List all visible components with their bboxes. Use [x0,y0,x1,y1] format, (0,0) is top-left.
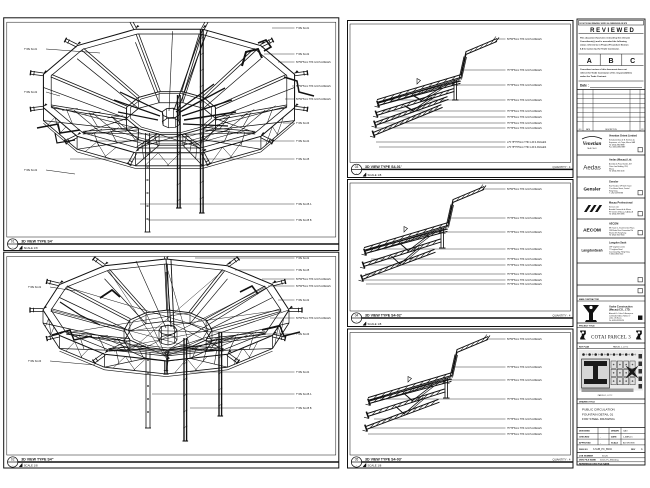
svg-text:Aedas (Macau) Ltd.: Aedas (Macau) Ltd. [609,159,632,162]
svg-text:75*75*6mm THK G.M.S ANGLES: 75*75*6mm THK G.M.S ANGLES [507,418,542,421]
svg-text:-: - [356,171,357,175]
svg-text:50*50*5mm THK G.M.S ANGLES: 50*50*5mm THK G.M.S ANGLES [507,188,542,191]
svg-text:JOB NUMBER: JOB NUMBER [579,456,593,458]
svg-text:TYPE SA-05 B: TYPE SA-05 B [296,219,312,222]
svg-text:31526_PC_8N04.dwg: 31526_PC_8N04.dwg [600,460,619,462]
svg-text:REV: REV [631,449,636,451]
svg-text:TYPE SA-05 A: TYPE SA-05 A [296,393,312,396]
svg-text:TYPE SA-05: TYPE SA-05 [296,269,310,272]
svg-text:TYPE SA-04: TYPE SA-04 [296,140,310,143]
svg-text:DRAWN: DRAWN [611,430,619,433]
svg-text:Tel: (853) 2833 1133: Tel: (853) 2833 1133 [609,171,624,173]
svg-text:75*75*6mm THK G.M.S ANGLES: 75*75*6mm THK G.M.S ANGLES [507,379,542,382]
svg-text:1-MAR-15: 1-MAR-15 [623,436,633,439]
svg-text:Macau Professional: Macau Professional [609,202,633,205]
svg-text:PUBLIC CIRCULATION: PUBLIC CIRCULATION [582,408,615,412]
svg-text:Gensler: Gensler [609,181,618,184]
svg-text:AS SHOWN: AS SHOWN [623,441,635,444]
svg-text:75*75*6mm THK G.M.S ANGLES: 75*75*6mm THK G.M.S ANGLES [507,283,542,286]
svg-text:50*50*5mm THK G.M.S ANGLES: 50*50*5mm THK G.M.S ANGLES [296,61,331,64]
svg-text:Tel: (852) 3922 9000: Tel: (852) 3922 9000 [609,235,625,237]
svg-text:75*75*6mm THK G.M.S ANGLES: 75*75*6mm THK G.M.S ANGLES [507,279,542,282]
svg-text:DWG FILE NAME: DWG FILE NAME [579,459,596,462]
svg-text:50*50*5mm THK G.M.S ANGLES: 50*50*5mm THK G.M.S ANGLES [296,85,331,88]
svg-text:COTAI PARCEL 3: COTAI PARCEL 3 [591,336,631,341]
svg-text:Venetian Orient Limited: Venetian Orient Limited [609,135,637,138]
svg-text:APPROVED: APPROVED [579,441,591,444]
svg-text:75*75*6mm THK G.M.S ANGLES: 75*75*6mm THK G.M.S ANGLES [507,258,542,261]
svg-text:75*75*6mm THK G.M.S ANGLES: 75*75*6mm THK G.M.S ANGLES [507,273,542,276]
svg-text:Langdon Seah: Langdon Seah [609,242,627,245]
svg-text:SCALE 1/8: SCALE 1/8 [368,322,382,326]
svg-text:TYPE SA-03: TYPE SA-03 [296,333,310,336]
svg-text:TYPE SA-05 A: TYPE SA-05 A [296,203,312,206]
svg-text:TYPE SA-03: TYPE SA-03 [28,360,42,363]
svg-text:50*50*5mm THK G.M.S ANGLES: 50*50*5mm THK G.M.S ANGLES [296,278,331,281]
svg-text:50*50*5mm THK G.M.S ANGLES: 50*50*5mm THK G.M.S ANGLES [296,317,331,320]
svg-text:-: - [356,320,357,324]
svg-text:-: - [12,464,13,468]
svg-text:DWG NO: DWG NO [579,449,588,451]
svg-text:75*75*6mm THK G.M.S ANGLES: 75*75*6mm THK G.M.S ANGLES [507,248,542,251]
svg-text:75*75*6mm THK G.M.S ANGLES: 75*75*6mm THK G.M.S ANGLES [507,433,542,436]
svg-text:andar J-K, Macau: andar J-K, Macau [609,318,622,320]
svg-text:05: 05 [355,458,359,462]
svg-text:A: A [587,58,592,65]
svg-text:(Macau) CO., LTD.: (Macau) CO., LTD. [609,309,631,312]
svg-text:TYPE SA-02: TYPE SA-02 [296,53,310,56]
svg-text:Fax: (853) 2882 8889: Fax: (853) 2882 8889 [609,147,625,149]
svg-text:75*75*6mm THK G.M.S ANGLES: 75*75*6mm THK G.M.S ANGLES [507,99,542,102]
svg-text:-: - [12,246,13,250]
svg-text:FOR STEEL DRAWING: FOR STEEL DRAWING [582,417,615,421]
svg-text:31526: 31526 [602,456,609,458]
svg-text:Date :: Date : [580,84,589,88]
svg-text:50*50*5mm THK G.M.S ANGLES: 50*50*5mm THK G.M.S ANGLES [296,285,331,288]
svg-text:DATE: DATE [611,436,617,439]
svg-text:3D VIEW TYPE S4-01': 3D VIEW TYPE S4-01' [365,165,402,169]
svg-text:PARCEL 1, LOT 2: PARCEL 1, LOT 2 [613,345,628,348]
svg-text:DESIGNED: DESIGNED [579,431,590,433]
svg-text:TYPE SA-02: TYPE SA-02 [28,286,42,289]
svg-text:Aedas: Aedas [583,165,601,172]
svg-text:L75 75*75*6mm THK G.M.S ANGLES: L75 75*75*6mm THK G.M.S ANGLES [507,141,547,144]
svg-text:SCALE 1/8: SCALE 1/8 [24,246,38,250]
svg-text:SCALE: SCALE [611,441,619,444]
svg-text:03: 03 [355,165,359,169]
svg-text:01: 01 [11,240,15,244]
svg-text:5.4 for action by the Trade Co: 5.4 for action by the Trade Contractor. [580,47,620,50]
svg-text:TYPE SA-02: TYPE SA-02 [296,257,310,260]
svg-text:50*50*5mm THK G.M.S ANGLES: 50*50*5mm THK G.M.S ANGLES [296,98,331,101]
svg-text:50*50*5mm THK G.M.S ANGLES: 50*50*5mm THK G.M.S ANGLES [507,338,542,341]
svg-text:PROJECT TITLE: PROJECT TITLE [579,325,595,327]
svg-text:AECOM: AECOM [583,228,601,234]
svg-text:LangdonSeah: LangdonSeah [581,249,602,253]
svg-text:QUANTITY : 4: QUANTITY : 4 [553,457,571,461]
svg-text:Tel: 00853-28705226: Tel: 00853-28705226 [609,320,624,322]
svg-text:TYPE SA-02: TYPE SA-02 [24,169,38,172]
svg-text:TYPE SA-05: TYPE SA-05 [296,158,310,161]
svg-text:relieve the Trade Contractor o: relieve the Trade Contractor of his resp… [580,72,633,75]
svg-text:Consultant review of this docu: Consultant review of this document does … [580,68,627,71]
svg-text:3D VIEW TYPE S4': 3D VIEW TYPE S4' [21,239,53,243]
svg-text:75*75*6mm THK G.M.S ANGLES: 75*75*6mm THK G.M.S ANGLES [507,69,542,72]
svg-text:QUANTITY : 4: QUANTITY : 4 [553,313,571,317]
svg-text:Venetian: Venetian [583,141,602,147]
svg-text:TYPE SA-04: TYPE SA-04 [296,371,310,374]
svg-text:TYPE SA-02: TYPE SA-02 [24,91,38,94]
svg-text:SCALE 1/8: SCALE 1/8 [368,463,382,467]
svg-text:C: C [630,58,635,65]
svg-text:This document has been revised: This document has been revised by the re… [580,37,630,40]
svg-text:75*75*6mm THK G.M.S ANGLES: 75*75*6mm THK G.M.S ANGLES [507,366,542,369]
svg-text:TYPE SA-03: TYPE SA-03 [296,122,310,125]
svg-text:75*75*6mm THK G.M.S ANGLES: 75*75*6mm THK G.M.S ANGLES [507,231,542,234]
svg-text:75*75*6mm THK G.M.S ANGLES: 75*75*6mm THK G.M.S ANGLES [507,116,542,119]
svg-text:PARCEL 1, LOT 2: PARCEL 1, LOT 2 [598,394,612,397]
svg-text:75*75*6mm THK G.M.S ANGLES: 75*75*6mm THK G.M.S ANGLES [507,264,542,267]
svg-text:REFERENCE DWG FILE NAME: REFERENCE DWG FILE NAME [579,463,610,466]
svg-text:SCALE 1/8: SCALE 1/8 [368,173,382,177]
svg-text:04: 04 [355,314,359,318]
svg-text:T: (852) 2830 3500: T: (852) 2830 3500 [609,254,623,256]
svg-text:L75 75*75*6mm THK G.M.S ANGLES: L75 75*75*6mm THK G.M.S ANGLES [507,146,547,149]
svg-text:Tel: (853) 2878 3396: Tel: (853) 2878 3396 [609,214,625,216]
svg-text:75*75*6mm THK G.M.S ANGLES: 75*75*6mm THK G.M.S ANGLES [507,122,542,125]
svg-text:3D VIEW TYPE S4-02': 3D VIEW TYPE S4-02' [365,313,402,317]
svg-text:QUANTITY : 4: QUANTITY : 4 [553,165,571,169]
svg-text:KEY PLAN: KEY PLAN [579,345,590,348]
svg-text:75*75*6mm THK G.M.S ANGLES: 75*75*6mm THK G.M.S ANGLES [507,127,542,130]
svg-text:50*50*5mm THK G.M.S ANGLES: 50*50*5mm THK G.M.S ANGLES [507,38,542,41]
svg-text:TYPE SA-01: TYPE SA-01 [24,48,38,51]
svg-text:T: +852 2599 8788: T: +852 2599 8788 [609,193,623,195]
svg-text:MAIN CONTRACTOR: MAIN CONTRACTOR [579,298,599,301]
svg-text:3D VIEW TYPE S4-03': 3D VIEW TYPE S4-03' [365,457,402,461]
svg-text:R E V I E W E D: R E V I E W E D [590,28,634,34]
svg-text:TYPE SA-02: TYPE SA-02 [296,299,310,302]
svg-text:SCALE 1/8: SCALE 1/8 [24,463,38,467]
svg-text:B: B [608,58,613,65]
svg-text:75*75*6mm THK G.M.S ANGLES: 75*75*6mm THK G.M.S ANGLES [507,110,542,113]
svg-text:-: - [356,464,357,468]
svg-text:CHECKED: CHECKED [579,437,590,439]
svg-text:M A C A O: M A C A O [587,147,597,150]
svg-text:status referred to in Project: status referred to in Project Procedure … [580,44,629,47]
svg-text:DESCRIPTION: DESCRIPTION [605,129,617,131]
svg-text:FOUNTAIN DETAIL 01: FOUNTAIN DETAIL 01 [582,412,614,416]
svg-text:75*75*6mm THK G.M.S ANGLES: 75*75*6mm THK G.M.S ANGLES [507,217,542,220]
svg-text:75*75*6mm THK G.M.S ANGLES: 75*75*6mm THK G.M.S ANGLES [507,398,542,401]
svg-text:75*75*6mm THK G.M.S ANGLES: 75*75*6mm THK G.M.S ANGLES [507,427,542,430]
svg-text:02: 02 [11,458,15,462]
svg-text:3D VIEW TYPE S4'': 3D VIEW TYPE S4'' [21,457,53,461]
svg-text:under the Trade Contract.: under the Trade Contract. [580,75,607,78]
svg-text:Consultants(s) and is accorded: Consultants(s) and is accorded the follo… [580,40,627,43]
svg-text:Gensler: Gensler [583,187,600,192]
svg-text:GAO: GAO [623,430,628,433]
svg-text:75*75*6mm THK G.M.S ANGLES: 75*75*6mm THK G.M.S ANGLES [507,84,542,87]
svg-text:3-SUB_PC_8N04: 3-SUB_PC_8N04 [593,448,612,451]
svg-text:AECOM: AECOM [609,223,618,226]
svg-text:TYPE SA-05 B: TYPE SA-05 B [296,407,312,410]
svg-text:DRAWING TITLE: DRAWING TITLE [579,401,595,404]
svg-text:TYPE SA-01: TYPE SA-01 [296,27,310,30]
